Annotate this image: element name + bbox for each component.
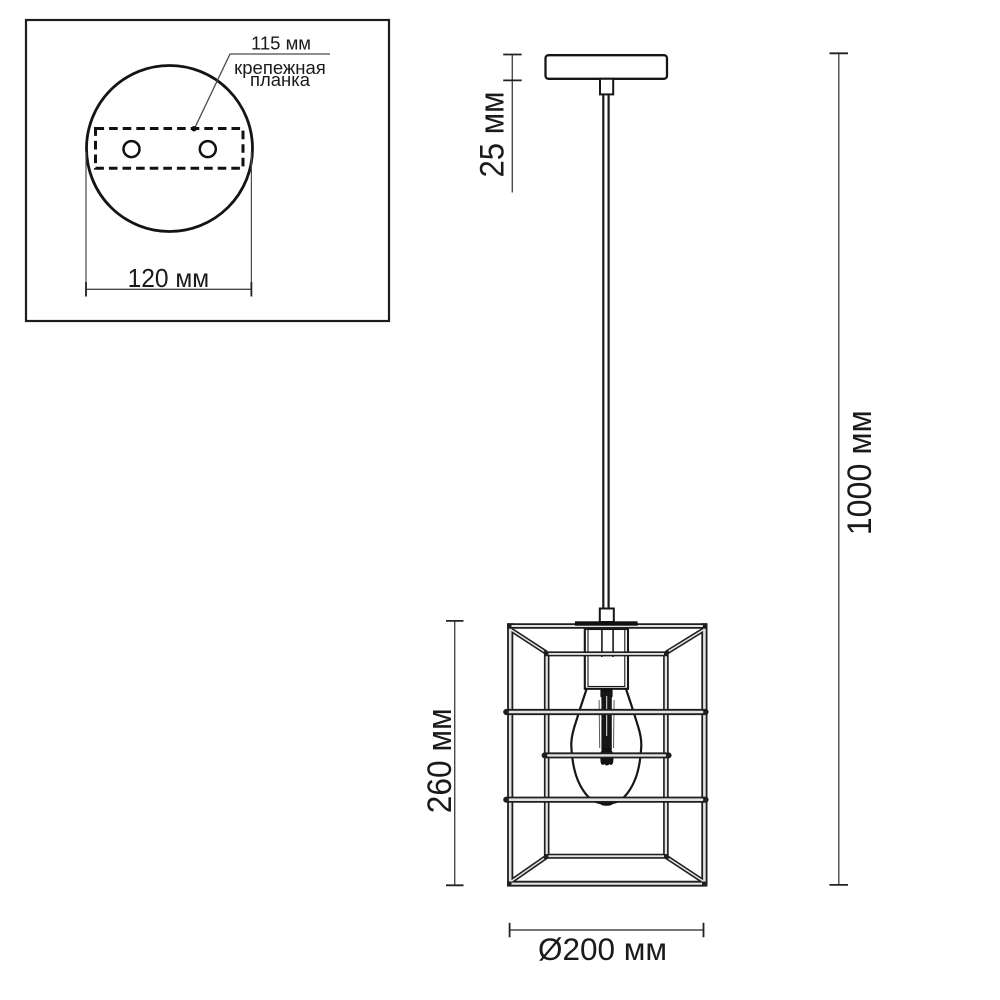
svg-text:120 мм: 120 мм [128,263,210,293]
svg-text:260 мм: 260 мм [421,708,459,813]
svg-text:Ø200 мм: Ø200 мм [538,931,667,967]
svg-text:115 мм: 115 мм [251,33,311,54]
svg-text:25 мм: 25 мм [474,92,512,178]
svg-text:1000 мм: 1000 мм [841,410,879,535]
svg-text:планка: планка [250,69,311,90]
